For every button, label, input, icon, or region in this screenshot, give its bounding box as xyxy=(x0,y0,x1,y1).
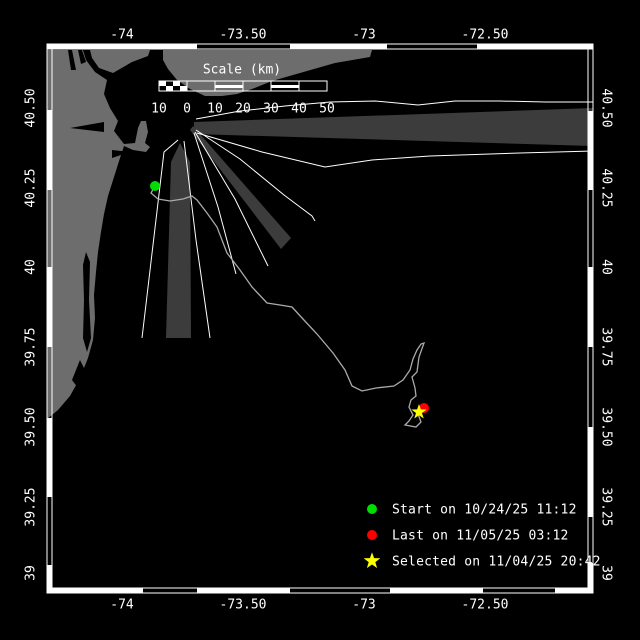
track-line[interactable] xyxy=(151,186,424,427)
scale-bar-stripe xyxy=(215,85,243,88)
lon-label-bottom: -74 xyxy=(110,598,133,613)
radar-beam-south xyxy=(166,143,191,338)
scale-bar-stripe xyxy=(271,85,299,88)
scale-tick-label: 0 xyxy=(183,102,191,117)
lat-label-left: 39.25 xyxy=(24,487,39,526)
lat-label-right: 39.50 xyxy=(599,407,614,446)
legend-selected-label: Selected on 11/04/25 20:42 xyxy=(392,555,601,570)
scale-tick-label: 10 xyxy=(151,102,167,117)
lat-label-right: 39.75 xyxy=(599,327,614,366)
scale-bar-checker xyxy=(173,81,180,86)
radar-beam-southeast xyxy=(190,126,291,249)
lon-label-top: -73 xyxy=(352,28,375,43)
lat-label-left: 39 xyxy=(24,565,39,581)
lat-label-left: 39.75 xyxy=(24,327,39,366)
lat-label-right: 40.25 xyxy=(599,168,614,207)
lon-label-bottom: -72.50 xyxy=(462,598,509,613)
lat-label-right: 39.25 xyxy=(599,487,614,526)
legend-last-label: Last on 11/05/25 03:12 xyxy=(392,529,569,544)
map-canvas[interactable] xyxy=(0,0,640,640)
lon-label-bottom: -73.50 xyxy=(220,598,267,613)
navesink-inlet xyxy=(112,150,130,158)
scale-tick-label: 40 xyxy=(291,102,307,117)
last-dot-icon xyxy=(367,530,377,540)
lon-label-top: -74 xyxy=(110,28,133,43)
land-new-jersey xyxy=(47,50,150,419)
scale-tick-label: 50 xyxy=(319,102,335,117)
start-marker[interactable] xyxy=(150,181,160,191)
legend-start-label: Start on 10/24/25 11:12 xyxy=(392,503,577,518)
lat-label-left: 40.50 xyxy=(24,88,39,127)
scale-tick-label: 20 xyxy=(235,102,251,117)
lat-label-right: 40.50 xyxy=(599,88,614,127)
lat-label-left: 40 xyxy=(24,259,39,275)
lon-label-top: -72.50 xyxy=(462,28,509,43)
lat-label-right: 39 xyxy=(599,565,614,581)
scale-tick-label: 10 xyxy=(207,102,223,117)
scale-bar-checker xyxy=(166,86,173,91)
radar-coverage-fan xyxy=(142,101,593,338)
scale-bar-checker xyxy=(159,81,166,86)
scale-bar-checker xyxy=(180,86,187,91)
land-nyc xyxy=(90,50,150,73)
lon-label-top: -73.50 xyxy=(220,28,267,43)
selected-star-icon xyxy=(362,551,382,571)
radar-beam-east xyxy=(194,108,593,146)
lat-label-left: 39.50 xyxy=(24,407,39,446)
scale-tick-label: 30 xyxy=(263,102,279,117)
lat-label-left: 40.25 xyxy=(24,168,39,207)
lat-label-right: 40 xyxy=(599,259,614,275)
radar-ray-se-61 xyxy=(195,132,268,266)
lon-label-bottom: -73 xyxy=(352,598,375,613)
scale-bar-title: Scale (km) xyxy=(203,63,281,78)
start-dot-icon xyxy=(367,504,377,514)
track-map-window: -74 -73.50 -73 -72.50 -74 -73.50 -73 -72… xyxy=(0,0,640,640)
